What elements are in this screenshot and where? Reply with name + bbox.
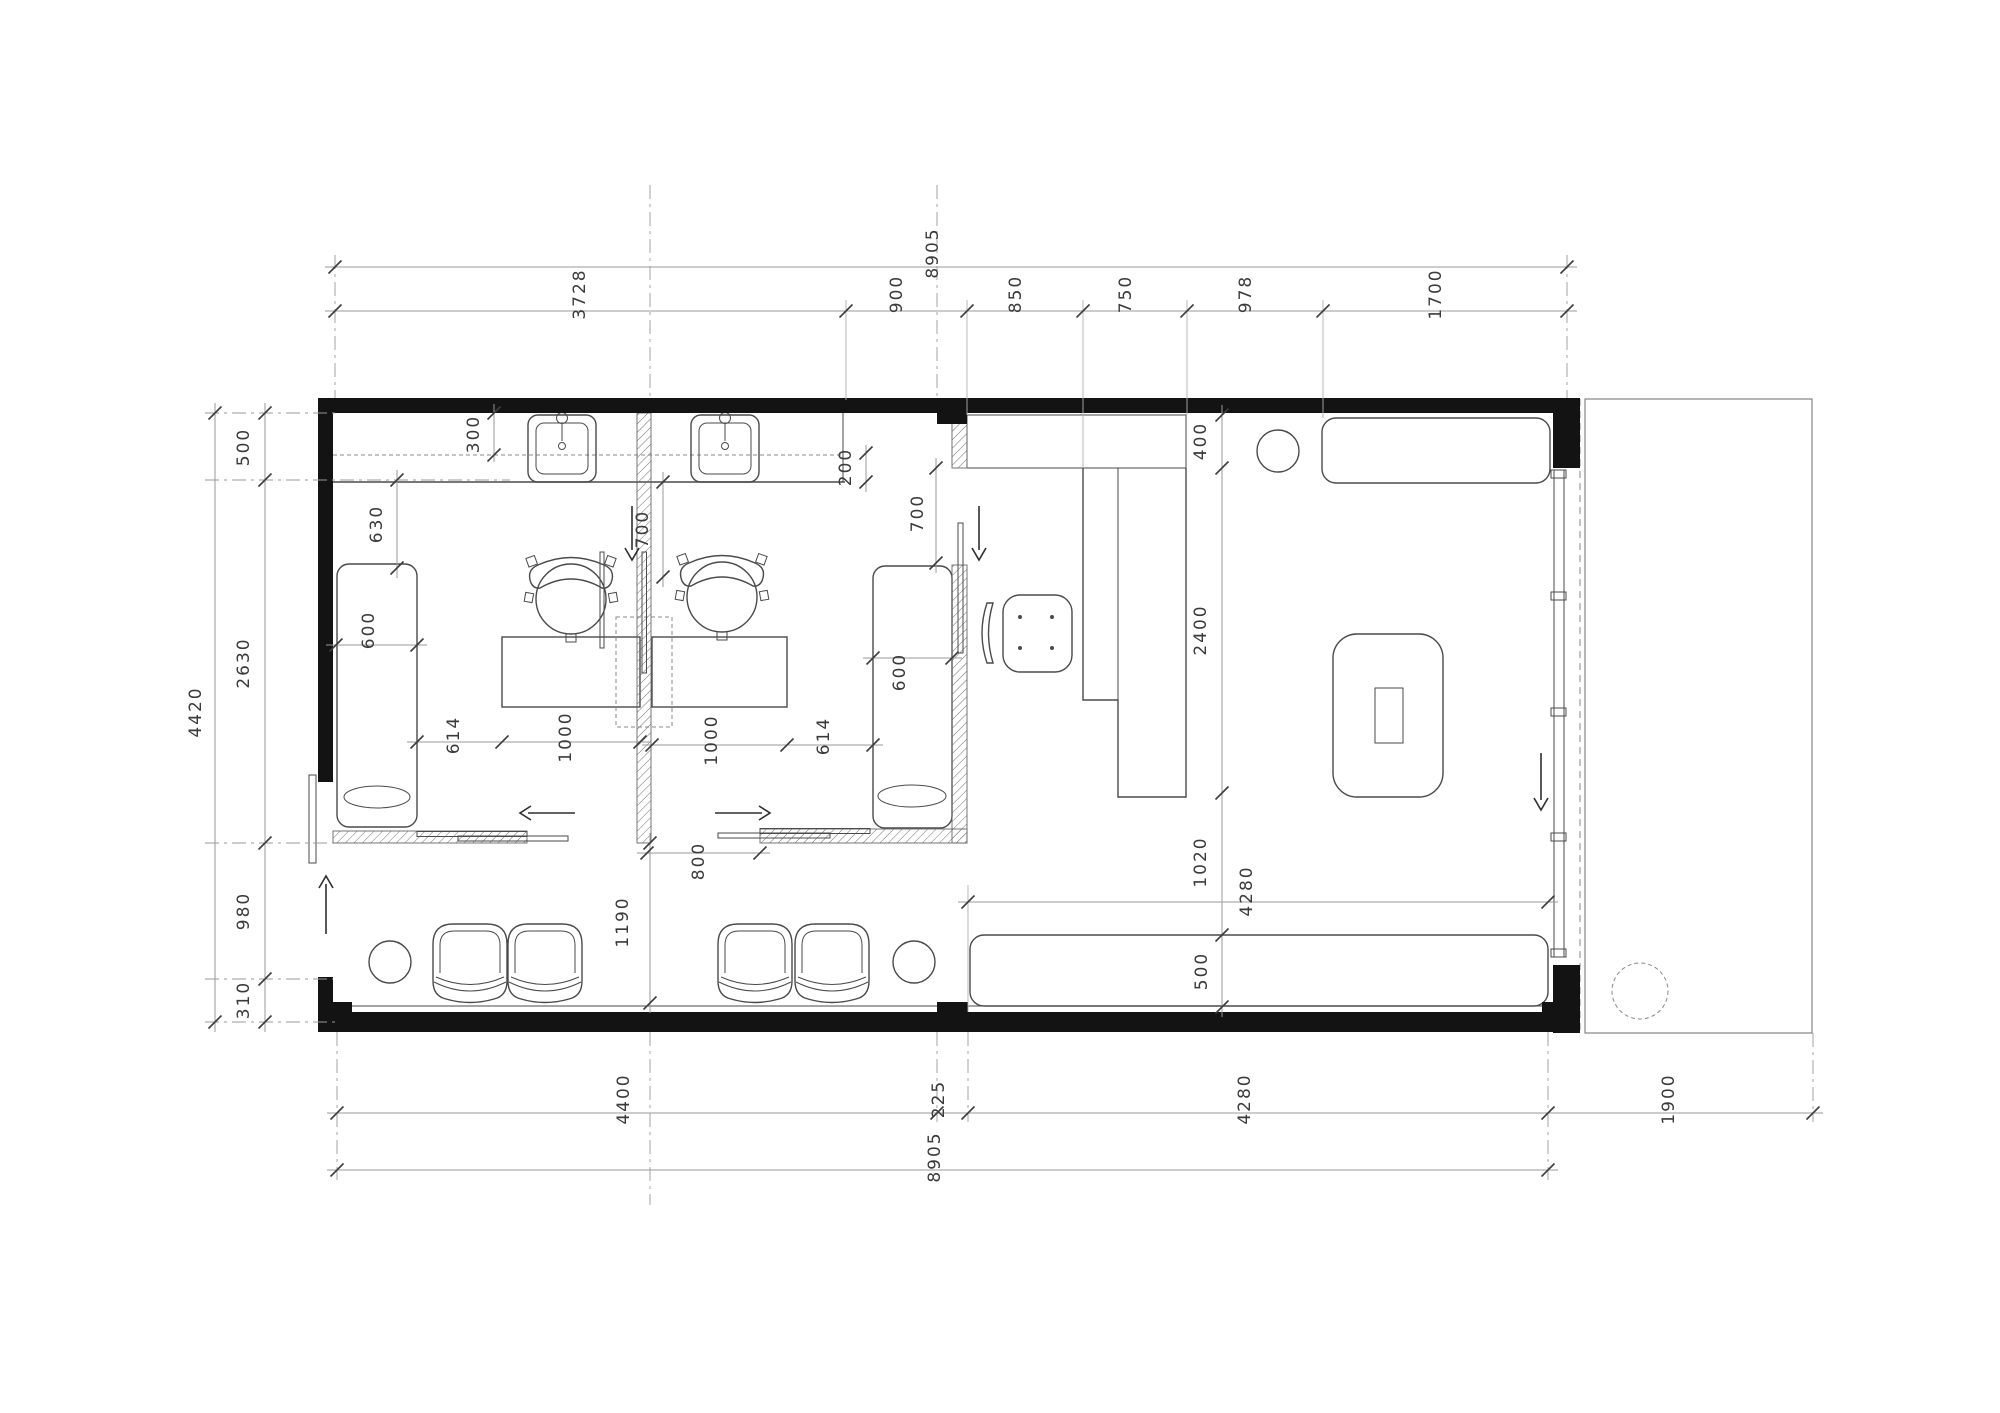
dim-desk-2400: 2400 [1191, 604, 1211, 655]
dimension-labels: 8905 3728 900 850 750 978 1700 4420 500 … [186, 227, 1679, 1182]
waiting-chair-1 [433, 924, 507, 1003]
back-counter [967, 415, 1186, 468]
dim-room1-614: 614 [444, 716, 464, 754]
dim-lounge-1020: 1020 [1191, 836, 1211, 887]
partition-room2-bottom [760, 829, 967, 843]
bench-lounge [970, 935, 1548, 1006]
sink-room1 [528, 413, 596, 483]
bench-room1 [337, 564, 417, 827]
reception-desk [1083, 468, 1186, 797]
terrace-dashed-circle [1612, 963, 1668, 1019]
dim-top-900: 900 [887, 275, 907, 313]
dim-left-total: 4420 [186, 686, 206, 737]
door-direction-arrows [319, 506, 1548, 934]
dim-bottom-225: 225 [929, 1080, 949, 1118]
treatment-chair-room2 [675, 554, 769, 640]
dim-bottom-4280: 4280 [1235, 1073, 1255, 1124]
dim-room1-700: 700 [633, 510, 653, 548]
side-table-1 [369, 941, 411, 983]
side-table-2 [893, 941, 935, 983]
terrace-outline [1580, 399, 1812, 1033]
partition-office-stub [952, 423, 967, 468]
office-chair [982, 595, 1072, 672]
waiting-chair-2 [508, 924, 582, 1003]
window-door-arrow-icon [1534, 753, 1548, 810]
waiting-chair-3 [718, 924, 792, 1003]
extension-lines [205, 185, 1813, 1205]
room1-slide-arrow-icon [520, 806, 575, 820]
dim-left-2630: 2630 [234, 637, 254, 688]
dim-left-980: 980 [234, 892, 254, 930]
dim-shelf-300: 300 [464, 415, 484, 453]
exterior-walls [318, 398, 1580, 1033]
floor-plan-canvas: 8905 3728 900 850 750 978 1700 4420 500 … [0, 0, 2000, 1413]
window-wall [1551, 470, 1566, 957]
dim-bottom-total: 8905 [925, 1131, 945, 1182]
dim-bottom-1900: 1900 [1659, 1073, 1679, 1124]
dim-door-800: 800 [689, 842, 709, 880]
dim-top-750: 750 [1116, 275, 1136, 313]
dim-lounge-4280: 4280 [1237, 865, 1257, 916]
dim-office-700: 700 [908, 494, 928, 532]
dim-left-500: 500 [234, 428, 254, 466]
table-room1 [502, 637, 640, 707]
dim-bottom-4400: 4400 [614, 1073, 634, 1124]
waiting-chair-4 [795, 924, 869, 1003]
sliding-door-leaves [309, 523, 963, 863]
sofa-top-right [1322, 418, 1550, 483]
dim-room2-1000: 1000 [702, 714, 722, 765]
dim-desk-400: 400 [1191, 422, 1211, 460]
dim-room1-1000: 1000 [556, 711, 576, 762]
dim-top-total: 8905 [923, 227, 943, 278]
partition-office [952, 565, 967, 843]
coffee-table [1333, 634, 1443, 797]
dim-bench1-600: 600 [359, 611, 379, 649]
dim-counter-200: 200 [836, 448, 856, 486]
bench-room2 [873, 566, 952, 828]
dim-lounge-500: 500 [1192, 952, 1212, 990]
stool-top [1257, 430, 1299, 472]
dim-bench1-630: 630 [367, 505, 387, 543]
dim-room2-614: 614 [814, 717, 834, 755]
dim-bench2-600: 600 [890, 653, 910, 691]
partition-central [637, 413, 651, 843]
entrance-arrow-icon [319, 876, 333, 934]
dim-left-310: 310 [234, 981, 254, 1019]
counter-room1-2 [333, 413, 845, 482]
dim-top-978: 978 [1236, 275, 1256, 313]
dim-top-3728: 3728 [570, 268, 590, 319]
floor-plan-page: 8905 3728 900 850 750 978 1700 4420 500 … [0, 0, 2000, 1413]
room2-slide-arrow-icon [715, 806, 770, 820]
entrance-door-leaf [309, 775, 316, 863]
dim-top-850: 850 [1006, 275, 1026, 313]
dim-waiting-1190: 1190 [613, 896, 633, 947]
sink-room2 [691, 413, 759, 483]
dim-top-1700: 1700 [1426, 268, 1446, 319]
office-door-arrow-icon [972, 506, 986, 560]
